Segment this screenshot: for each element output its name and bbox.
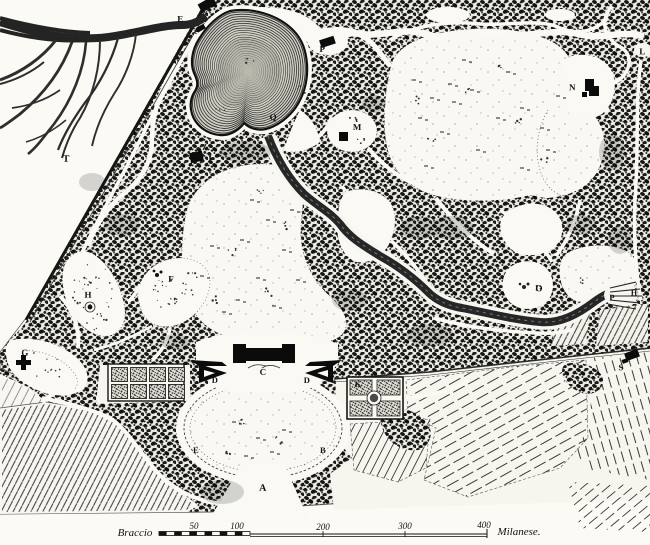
svg-text:K: K [355,379,362,389]
svg-text:300: 300 [397,521,412,531]
svg-text:400: 400 [477,520,491,530]
svg-text:G: G [21,348,28,358]
svg-text:O: O [535,283,542,293]
svg-text:C: C [260,367,267,377]
svg-text:H: H [631,288,638,297]
svg-text:Braccio: Braccio [118,527,153,539]
svg-text:Milanese.: Milanese. [496,526,540,538]
svg-text:E: E [177,14,183,24]
svg-text:D: D [212,375,218,385]
svg-text:L: L [639,46,645,56]
svg-text:S: S [619,362,624,372]
svg-text:200: 200 [316,522,330,532]
svg-text:B: B [320,445,326,455]
svg-text:50: 50 [190,521,200,531]
svg-text:P: P [609,292,614,302]
svg-text:P: P [319,44,325,54]
svg-text:D: D [304,375,310,385]
svg-text:T: T [63,154,70,165]
svg-text:F: F [168,274,174,284]
svg-text:I: I [208,153,212,163]
svg-text:M: M [353,122,362,132]
svg-text:H: H [84,290,91,300]
svg-text:A: A [259,483,267,494]
svg-text:100: 100 [230,521,244,531]
svg-text:E: E [193,445,199,455]
svg-text:Q: Q [270,112,277,122]
svg-text:N: N [569,82,576,92]
